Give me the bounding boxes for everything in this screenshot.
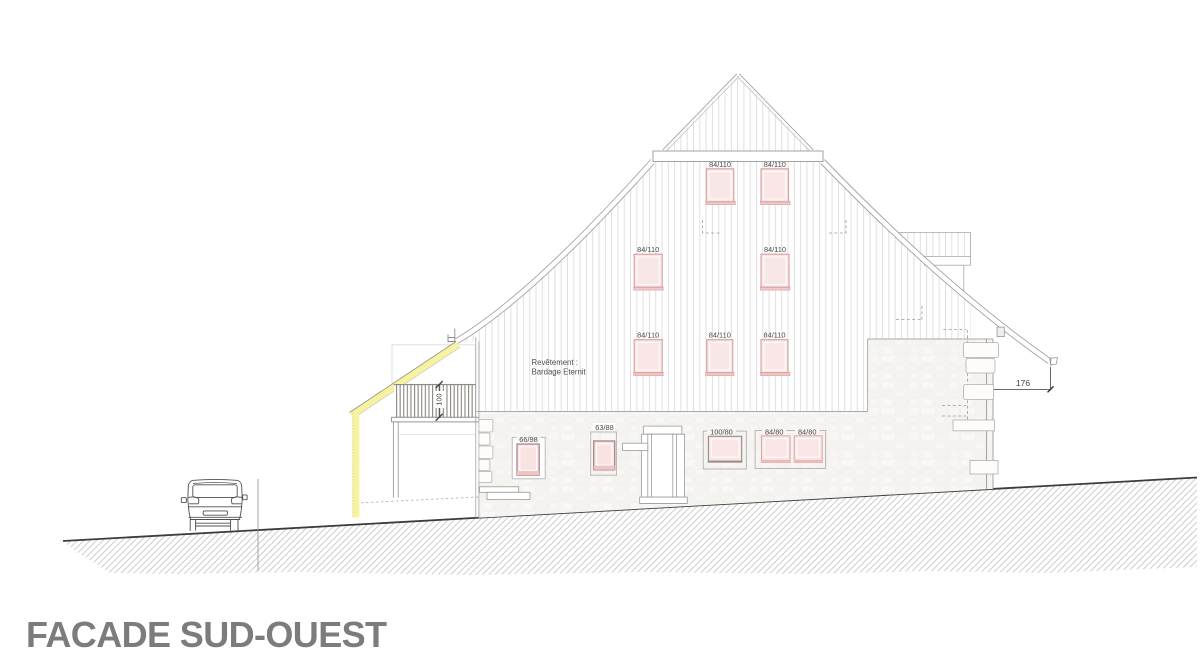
svg-text:84/80: 84/80	[798, 427, 817, 436]
svg-text:176: 176	[1016, 378, 1030, 388]
svg-text:FACADE SUD-OUEST: FACADE SUD-OUEST	[26, 614, 387, 655]
svg-text:100/80: 100/80	[710, 427, 733, 436]
svg-text:84/110: 84/110	[764, 245, 786, 254]
svg-text:84/110: 84/110	[763, 331, 785, 340]
svg-text:66/98: 66/98	[519, 435, 538, 444]
svg-text:63/88: 63/88	[595, 423, 614, 432]
svg-text:84/80: 84/80	[765, 427, 784, 436]
svg-text:84/110: 84/110	[764, 160, 786, 169]
svg-text:84/110: 84/110	[709, 160, 731, 169]
svg-text:84/110: 84/110	[637, 331, 659, 340]
svg-text:84/110: 84/110	[637, 245, 659, 254]
svg-text:84/110: 84/110	[709, 331, 731, 340]
svg-text:Revêtement :: Revêtement :	[532, 358, 578, 367]
svg-text:100: 100	[435, 394, 444, 406]
svg-text:Bardage Eternit: Bardage Eternit	[532, 368, 587, 377]
